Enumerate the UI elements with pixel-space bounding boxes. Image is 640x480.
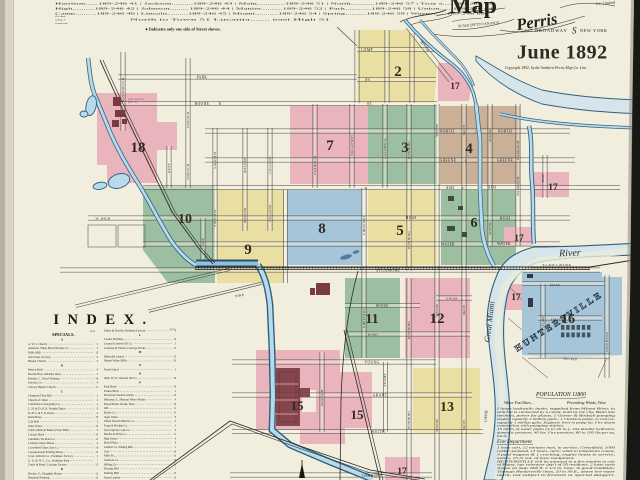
svg-text:9: 9	[244, 242, 252, 258]
svg-text:Map: Map	[449, 0, 497, 19]
svg-text:MIAMI: MIAMI	[368, 334, 378, 337]
svg-text:Cincinnati Corrugating Co.: Cincinnati Corrugating Co.	[28, 403, 61, 406]
svg-text:DOWNING: DOWNING	[407, 411, 411, 430]
svg-text:CALDWELL: CALDWELL	[383, 138, 387, 159]
svg-text:GARNSEY: GARNSEY	[362, 474, 382, 478]
svg-text:Crosslisted Tape Line Co.: Crosslisted Tape Line Co.	[28, 446, 60, 449]
svg-text:WAYNE: WAYNE	[435, 418, 439, 431]
svg-text:17: 17	[548, 183, 558, 193]
svg-text:Elmes Woolen Mitchls. Co.: Elmes Woolen Mitchls. Co.	[104, 420, 136, 423]
svg-text:8: 8	[318, 221, 326, 237]
svg-text:DOWNING: DOWNING	[407, 231, 411, 250]
svg-text:WOOD: WOOD	[376, 304, 389, 308]
svg-text:HARRISON: HARRISON	[516, 176, 520, 196]
svg-text:domestic pressure, 40 lbs. Fir: domestic pressure, 40 lbs. Fire pressure…	[497, 432, 616, 435]
svg-text:M: M	[139, 350, 142, 354]
svg-text:MAIN: MAIN	[462, 305, 466, 315]
svg-text:13: 13	[440, 400, 454, 415]
svg-text:Fire Department: Fire Department	[496, 439, 532, 445]
svg-text:Leonard Linseed Oil Co.: Leonard Linseed Oil Co.	[104, 342, 133, 345]
svg-text:Park Hotel: Park Hotel	[104, 386, 117, 389]
svg-text:SPRING: SPRING	[488, 128, 492, 142]
svg-text:18: 18	[131, 140, 146, 156]
svg-text:C: C	[475, 130, 477, 134]
svg-text:Brandel, C., Wood Working: Brandel, C., Wood Working	[28, 377, 60, 380]
svg-text:WAYNE: WAYNE	[435, 123, 439, 136]
svg-text:BOONE: BOONE	[195, 102, 210, 106]
svg-text:Clark, Mills & Baker, Flour Mi: Clark, Mills & Baker, Flour Mills	[28, 429, 69, 432]
svg-text:ADAMS: ADAMS	[383, 373, 387, 387]
svg-text:PARK: PARK	[197, 76, 208, 80]
svg-text:Methodist Church: Methodist Church	[104, 355, 125, 358]
svg-text:A. W. S. Church: A. W. S. Church	[28, 343, 47, 346]
svg-text:Star Light & Coke Co.: Star Light & Coke Co.	[104, 429, 131, 432]
svg-text:W: W	[364, 186, 367, 190]
svg-text:AV.: AV.	[365, 78, 371, 82]
svg-text:WALKER: WALKER	[243, 207, 247, 223]
svg-text:MAIN: MAIN	[550, 283, 560, 287]
svg-text:Columbia Tie Plate Co.: Columbia Tie Plate Co.	[28, 438, 56, 441]
svg-text:DOWNING: DOWNING	[407, 321, 411, 340]
svg-text:inch.: inch.	[497, 435, 508, 438]
svg-text:WATER: WATER	[497, 242, 511, 246]
svg-text:SPECIALS.: SPECIALS.	[52, 332, 75, 337]
svg-text:Anderson, Wiper Board & Paper: Anderson, Wiper Board & Paper Co.	[28, 347, 70, 350]
svg-text:ASH: ASH	[446, 186, 454, 190]
svg-text:PIQUA HANDLE: PIQUA HANDLE	[128, 98, 145, 101]
svg-text:SOUTH: SOUTH	[371, 430, 385, 434]
svg-text:C. H. & D. R. R. Freight Depot: C. H. & D. R. R. Freight Depot	[28, 408, 66, 411]
svg-text:Placing Mill: Placing Mill	[104, 468, 119, 471]
svg-text:Parkes Brick: Parkes Brick	[104, 390, 120, 393]
svg-text:UNION: UNION	[446, 297, 458, 301]
svg-text:WATER: WATER	[441, 243, 455, 247]
svg-text:Handle & M'f'g Co.: Handle & M'f'g Co.	[104, 433, 127, 436]
svg-text:YOUNG: YOUNG	[365, 361, 380, 365]
svg-text:Rolling Mill: Rolling Mill	[104, 472, 119, 475]
svg-text:GRAY: GRAY	[167, 163, 171, 174]
svg-text:INDEX.: INDEX.	[53, 312, 154, 328]
svg-text:Round House: Round House	[28, 416, 42, 419]
svg-text:17: 17	[450, 82, 460, 92]
svg-text:12: 12	[430, 311, 445, 327]
svg-text:10: 10	[178, 212, 192, 227]
svg-text:NEW YORK: NEW YORK	[580, 28, 608, 33]
svg-text:GREENE: GREENE	[440, 159, 457, 163]
svg-text:6: 6	[471, 216, 478, 231]
svg-text:B: B	[61, 363, 63, 367]
svg-text:Dispatch Printing: Dispatch Printing	[28, 477, 50, 480]
svg-text:Commercial.: Commercial.	[55, 22, 68, 25]
svg-text:Benson Hotel: Benson Hotel	[28, 369, 43, 372]
svg-text:SPRING: SPRING	[488, 221, 492, 235]
svg-text:● Indicates only one side of S: ● Indicates only one side of Street show…	[145, 27, 221, 32]
svg-text:Leafer Printing: Leafer Printing	[104, 338, 123, 341]
svg-text:North School: North School	[104, 368, 119, 371]
svg-text:ERIE: ERIE	[201, 238, 205, 247]
svg-text:Fouge & Machine Co.: Fouge & Machine Co.	[104, 424, 128, 427]
svg-text:GREENE: GREENE	[497, 159, 514, 163]
svg-text:Cron, Kills & Co., Furniture F: Cron, Kills & Co., Furniture Factory	[28, 455, 74, 458]
svg-text:2: 2	[394, 64, 402, 80]
svg-text:D. & U. & T. R. Depot: D. & U. & T. R. Depot	[28, 412, 54, 415]
svg-text:Water Works: Water Works	[28, 425, 42, 428]
svg-text:MAIN: MAIN	[462, 125, 466, 135]
svg-text:E: E	[465, 159, 467, 163]
svg-text:River: River	[558, 248, 581, 260]
svg-text:Miami Valley Mills: Miami Valley Mills	[104, 360, 127, 363]
svg-text:HIGH: HIGH	[500, 217, 511, 221]
svg-text:ST.: ST.	[367, 102, 373, 106]
svg-text:E: E	[219, 102, 222, 106]
svg-text:BROADWAY: BROADWAY	[350, 134, 354, 156]
svg-text:117 BROADWAY: 117 BROADWAY	[524, 28, 568, 33]
svg-text:Milling Go: Milling Go	[104, 463, 117, 466]
svg-text:MFG. CO.: MFG. CO.	[128, 102, 138, 104]
svg-text:WALKER: WALKER	[243, 157, 247, 173]
svg-text:Colonic Hotel: Colonic Hotel	[28, 434, 44, 437]
svg-text:Champion Flour Mill: Champion Flour Mill	[28, 395, 52, 398]
svg-text:June 1892: June 1892	[517, 42, 608, 64]
svg-text:VIRGINIA: VIRGINIA	[213, 209, 217, 227]
svg-text:NORTH: NORTH	[498, 130, 512, 134]
svg-text:NEW: NEW	[541, 174, 545, 182]
svg-text:SYCAMORE: SYCAMORE	[376, 269, 401, 273]
svg-text:5: 5	[396, 223, 404, 239]
svg-text:JACKSON: JACKSON	[320, 389, 324, 406]
svg-text:Seabrose Co.: Seabrose Co.	[104, 459, 119, 462]
svg-text:GRANT: GRANT	[373, 394, 388, 398]
svg-text:Steam Laundry: Steam Laundry	[104, 476, 121, 479]
svg-text:Ohio W. P., Linseed Oil Co.: Ohio W. P., Linseed Oil Co.	[104, 377, 138, 380]
svg-text:Bassett Church: Bassett Church	[28, 360, 46, 363]
svg-text:LINCOLN: LINCOLN	[186, 111, 190, 128]
svg-text:P: P	[139, 380, 141, 384]
svg-text:Hotel Plaza: Hotel Plaza	[104, 442, 119, 445]
svg-text:S: S	[572, 26, 577, 36]
svg-text:E: E	[462, 186, 464, 190]
svg-text:W. HIGH: W. HIGH	[95, 217, 110, 221]
svg-text:17: 17	[511, 293, 521, 303]
svg-text:City Hall: City Hall	[28, 421, 39, 424]
svg-text:ASH: ASH	[488, 186, 496, 190]
svg-text:7: 7	[326, 138, 334, 154]
svg-text:17: 17	[514, 234, 524, 244]
svg-text:4: 4	[465, 141, 473, 157]
svg-text:COLLEGE: COLLEGE	[268, 204, 272, 221]
svg-text:HIGH: HIGH	[406, 216, 417, 220]
svg-text:Piqua Boiler Works, Bow...: Piqua Boiler Works, Bow...	[104, 403, 137, 406]
svg-text:15: 15	[351, 407, 365, 422]
svg-text:Lumber Co. Planing Mill: Lumber Co. Planing Mill	[104, 446, 133, 449]
svg-text:POPULATION 11800: POPULATION 11800	[535, 391, 587, 398]
svg-text:Correspondent Printing House: Correspondent Printing House	[28, 451, 64, 454]
svg-text:Malt Fo...: Malt Fo...	[104, 455, 117, 458]
svg-text:Oil.: Oil.	[104, 407, 109, 410]
svg-text:High Someol: High Someol	[104, 437, 118, 440]
svg-text:Bowdle Bros., Machine Shop: Bowdle Bros., Machine Shop	[28, 373, 61, 376]
svg-text:C: C	[61, 389, 63, 393]
svg-text:Church of Christ: Church of Christ	[28, 399, 48, 402]
svg-text:Calvary Baptist Church: Calvary Baptist Church	[28, 386, 56, 389]
svg-text:Mills Mill: Mills Mill	[28, 351, 41, 354]
svg-text:CAMP: CAMP	[361, 48, 373, 52]
svg-text:NORTH: NORTH	[440, 130, 454, 134]
svg-text:Electric Co.: Electric Co.	[28, 382, 43, 385]
svg-text:11: 11	[365, 312, 378, 327]
svg-text:MAIN: MAIN	[462, 420, 466, 430]
svg-text:North to Town 51 Lucania..: North to Town 51 Lucania....... east Hig…	[130, 19, 333, 22]
svg-text:3: 3	[401, 140, 409, 156]
svg-text:Sugar Works: Sugar Works	[104, 416, 118, 419]
svg-text:WASHINGTON: WASHINGTON	[121, 77, 125, 102]
svg-text:Harrison......189-246 41 | Jac: Harrison......189-246 41 | Jackson......…	[55, 3, 495, 6]
svg-text:High..........189-246 42 | Joh: High..........189-246 42 | Johnson......…	[55, 8, 495, 11]
svg-text:Yard: Yard	[104, 450, 110, 453]
svg-text:P. C. & ST. L. (N Y) R.R.: P. C. & ST. L. (N Y) R.R.	[543, 264, 572, 267]
svg-text:FRANKLIN: FRANKLIN	[313, 155, 317, 175]
svg-text:15: 15	[291, 398, 305, 413]
svg-text:CHESTNUT: CHESTNUT	[362, 215, 366, 235]
svg-text:Bostle Co.: Bostle Co.	[104, 412, 117, 415]
svg-text:STAUNTON: STAUNTON	[605, 332, 609, 352]
svg-text:PAGE: PAGE	[90, 330, 96, 333]
svg-text:Water Facilities...: Water Facilities...	[504, 400, 534, 405]
svg-text:mark, not subject to freshets: mark, not subject to freshets or special…	[497, 474, 616, 477]
svg-text:G. O. & W. L. Co., Furniture P: G. O. & W. L. Co., Furniture Park	[28, 459, 70, 462]
svg-text:Protection Steam Laundry: Protection Steam Laundry	[104, 394, 135, 397]
svg-text:COLLEGE: COLLEGE	[268, 156, 272, 173]
svg-text:VIRGINIA: VIRGINIA	[213, 151, 217, 169]
svg-text:Ash Street Grocery: Ash Street Grocery	[28, 356, 51, 359]
svg-text:Camp..........189-246 40 | Lin: Camp..........189-246 40 | Lincoln......…	[55, 13, 487, 16]
svg-text:LINCOLN: LINCOLN	[186, 163, 190, 180]
svg-text:Country's Opera House: Country's Opera House	[28, 442, 55, 445]
svg-text:Pitkorny, S., Mineral Water Wo: Pitkorny, S., Mineral Water Works	[104, 399, 145, 402]
svg-text:HARRISON: HARRISON	[516, 140, 520, 160]
svg-text:L: L	[139, 333, 141, 337]
svg-text:Decker, V., Slaughter House: Decker, V., Slaughter House	[28, 472, 63, 475]
svg-text:17: 17	[397, 467, 407, 477]
